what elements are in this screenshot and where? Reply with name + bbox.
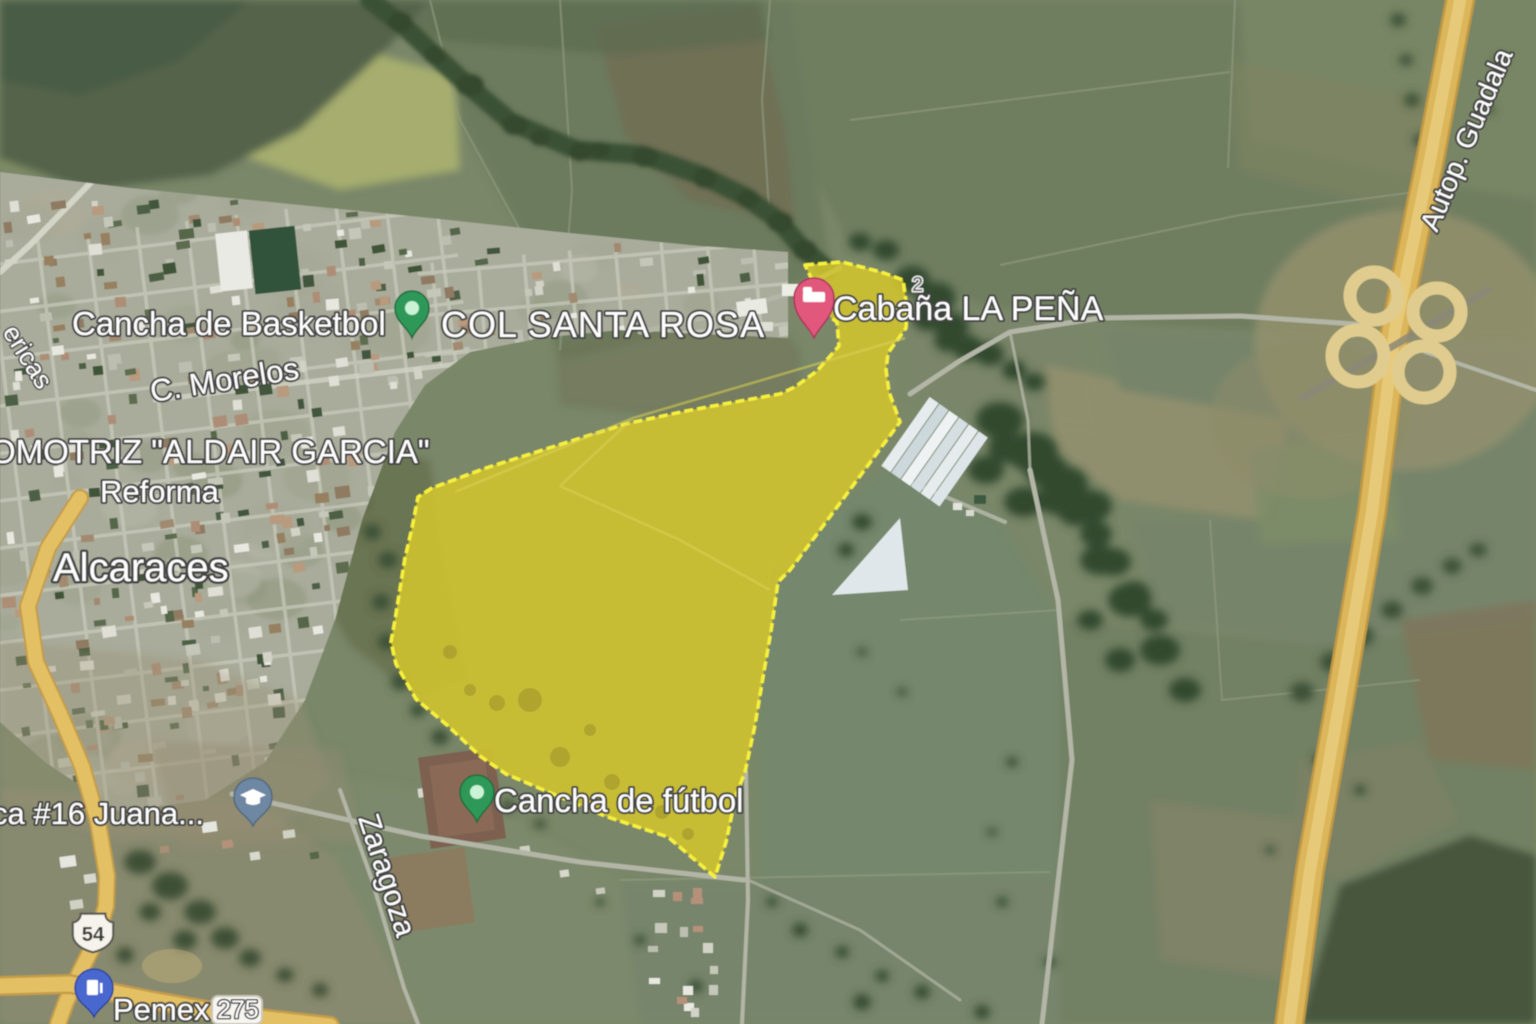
svg-text:2: 2 — [912, 274, 923, 296]
svg-text:Cancha de Basketbol: Cancha de Basketbol — [72, 305, 386, 342]
svg-text:COL SANTA ROSA: COL SANTA ROSA — [441, 304, 765, 345]
svg-text:54: 54 — [82, 924, 105, 946]
svg-text:Cancha de fútbol: Cancha de fútbol — [494, 782, 744, 819]
svg-text:OMOTRIZ "ALDAIR GARCIA": OMOTRIZ "ALDAIR GARCIA" — [0, 433, 430, 470]
svg-text:ca #16 Juana...: ca #16 Juana... — [0, 796, 204, 831]
svg-text:Pemex: Pemex — [113, 992, 210, 1024]
svg-text:275: 275 — [217, 996, 259, 1024]
svg-text:Cabaña LA PEÑA: Cabaña LA PEÑA — [833, 290, 1104, 328]
svg-text:Alcaraces: Alcaraces — [53, 546, 229, 590]
svg-text:Reforma: Reforma — [100, 474, 220, 509]
